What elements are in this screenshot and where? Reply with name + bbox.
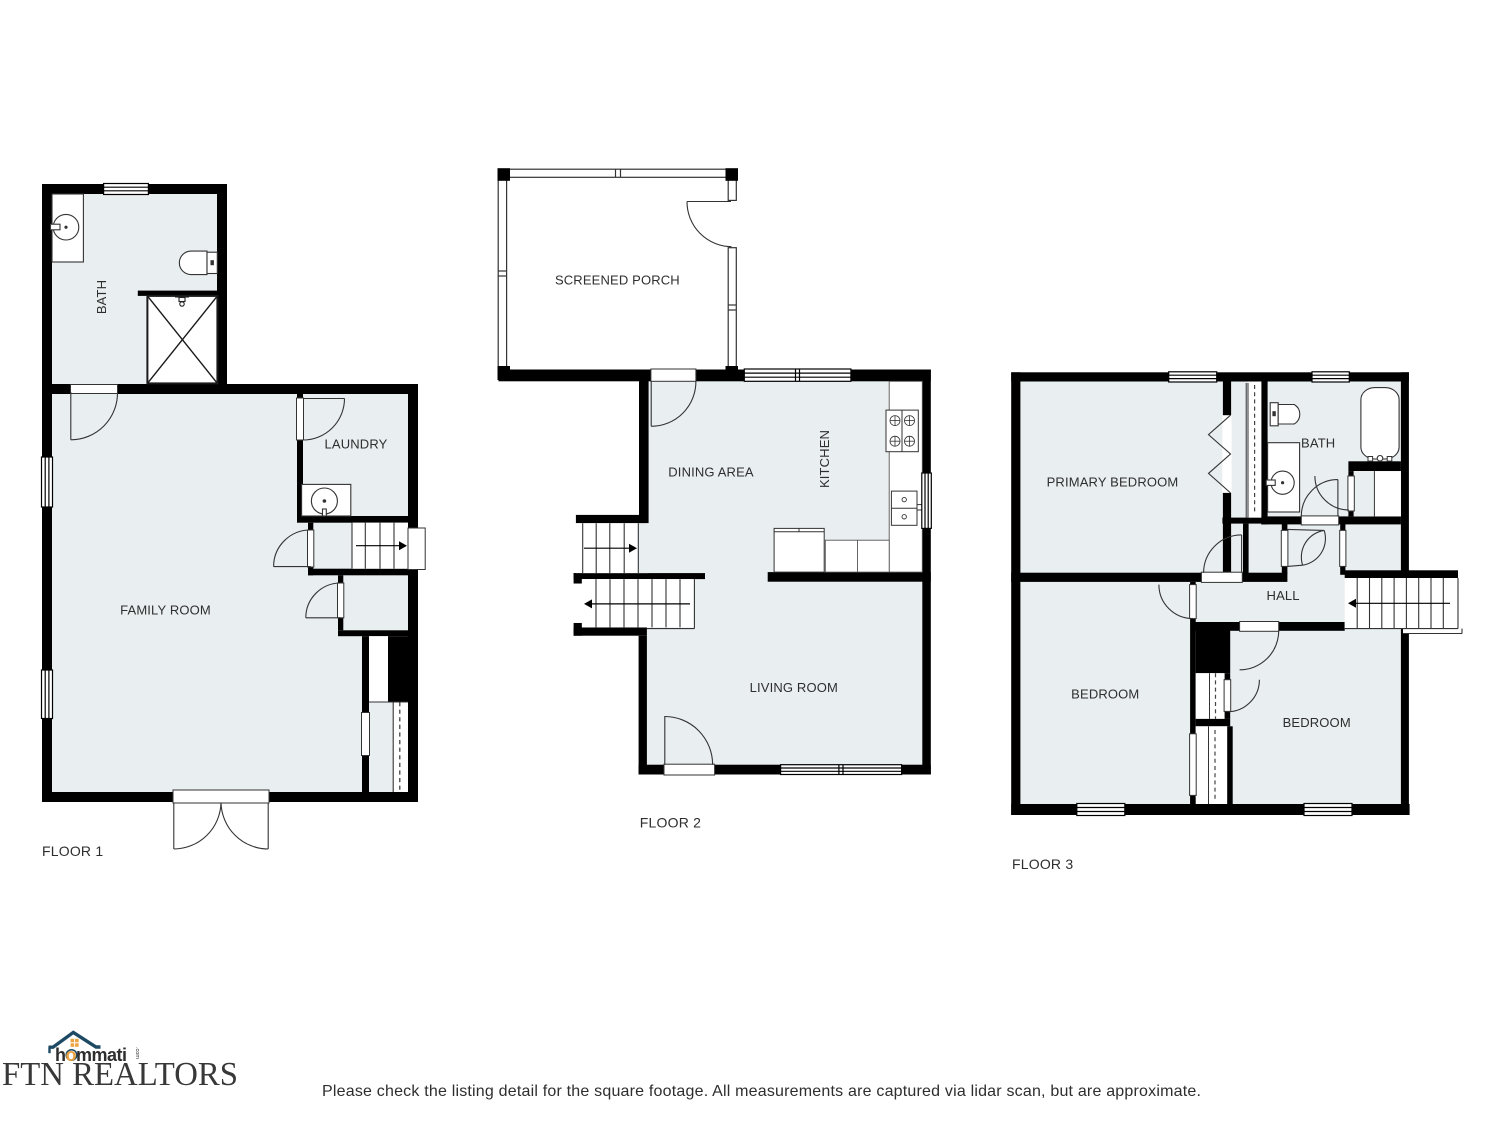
svg-text:FLOOR 3: FLOOR 3 (1012, 856, 1073, 872)
svg-text:BEDROOM: BEDROOM (1071, 686, 1139, 701)
svg-text:.com: .com (134, 1047, 140, 1059)
svg-text:FLOOR 2: FLOOR 2 (640, 815, 701, 831)
svg-text:FAMILY ROOM: FAMILY ROOM (120, 603, 211, 618)
svg-text:KITCHEN: KITCHEN (817, 430, 832, 488)
svg-text:BEDROOM: BEDROOM (1283, 715, 1351, 730)
svg-text:LAUNDRY: LAUNDRY (325, 437, 388, 452)
svg-text:PRIMARY BEDROOM: PRIMARY BEDROOM (1047, 475, 1179, 490)
svg-text:BATH: BATH (94, 280, 109, 314)
svg-text:DINING AREA: DINING AREA (668, 465, 754, 480)
svg-text:LIVING ROOM: LIVING ROOM (750, 680, 838, 695)
svg-text:Please check the listing detai: Please check the listing detail for the … (322, 1083, 1201, 1100)
svg-text:BATH: BATH (1301, 436, 1335, 451)
svg-text:SCREENED PORCH: SCREENED PORCH (555, 273, 680, 288)
svg-text:hommati: hommati (55, 1045, 127, 1065)
svg-text:HALL: HALL (1267, 588, 1300, 603)
svg-text:FLOOR 1: FLOOR 1 (42, 843, 103, 859)
